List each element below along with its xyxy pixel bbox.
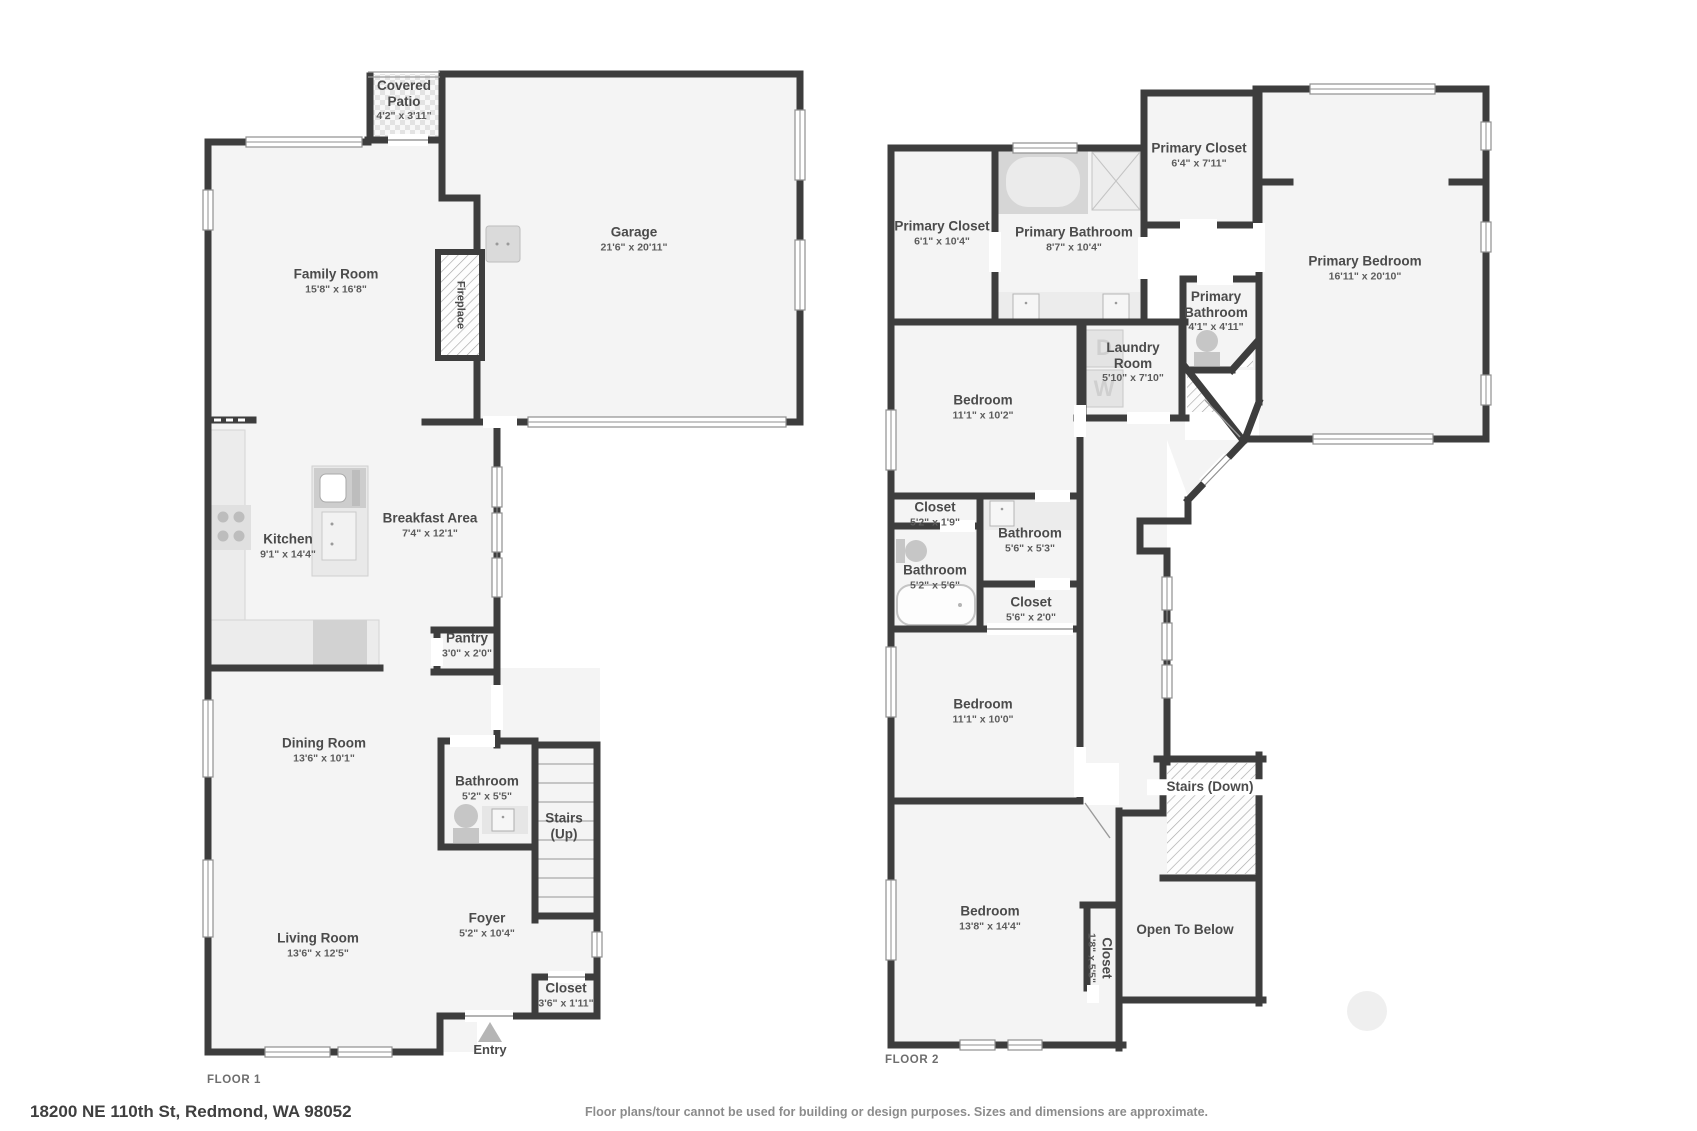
svg-text:D: D — [1096, 335, 1112, 360]
garage-utility-box — [486, 226, 520, 262]
disclaimer-text: Floor plans/tour cannot be used for buil… — [585, 1105, 1208, 1119]
entry-arrow-icon — [478, 1022, 502, 1042]
bathtub-icon — [998, 150, 1088, 214]
toilet-icon — [454, 804, 478, 828]
floor-plan-page: D W — [0, 0, 1697, 1131]
floor-caption-1: FLOOR 1 — [207, 1074, 261, 1086]
floor1-room-fills — [208, 74, 800, 1052]
stove-icon — [211, 505, 251, 550]
floor-caption-2: FLOOR 2 — [885, 1054, 939, 1066]
bathroom-right-sink — [984, 498, 1080, 530]
svg-text:W: W — [1094, 376, 1115, 401]
fireplace-box — [438, 252, 482, 358]
stairs-down-hatch — [1167, 763, 1256, 874]
entry-label: Entry — [473, 1042, 506, 1057]
property-address: 18200 NE 110th St, Redmond, WA 98052 — [30, 1102, 352, 1122]
kitchen-island — [312, 466, 368, 576]
floor-plan-drawing: D W — [0, 0, 1697, 1131]
logo-watermark — [1347, 991, 1387, 1031]
covered-patio-tiles — [370, 74, 440, 140]
shower-icon — [1092, 152, 1140, 210]
bathtub-icon — [897, 585, 975, 625]
